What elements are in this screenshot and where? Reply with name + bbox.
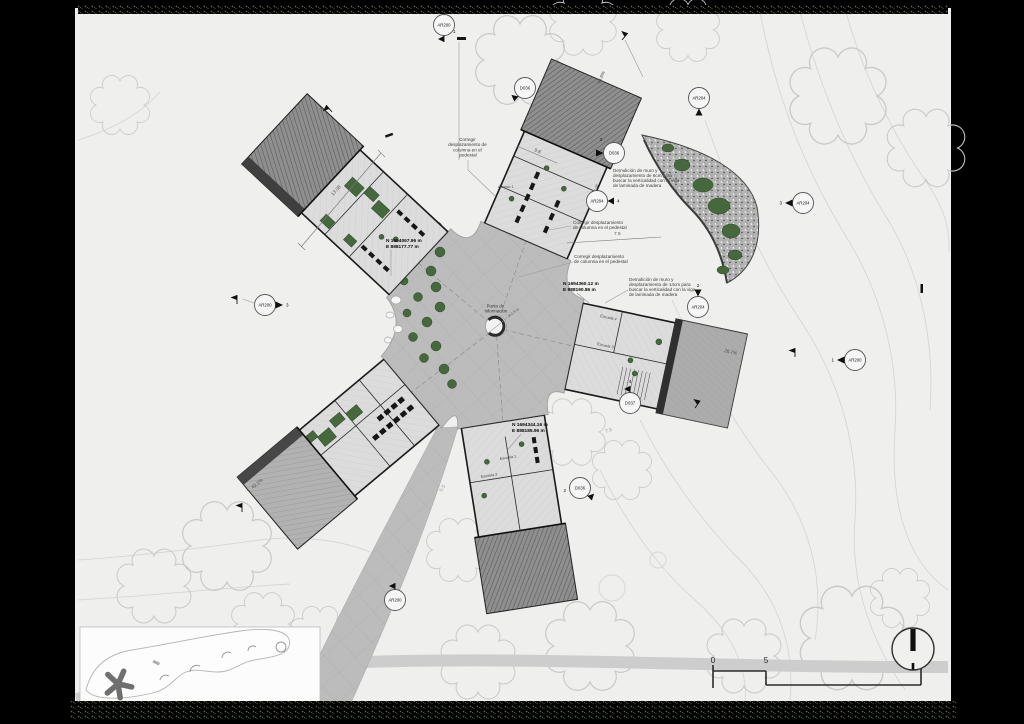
svg-text:AR204: AR204 [692,96,706,101]
svg-text:2: 2 [697,283,700,288]
svg-text:AR204: AR204 [691,305,705,310]
key-plan-inset [80,627,320,703]
svg-text:1: 1 [831,358,834,363]
svg-text:3: 3 [599,137,602,142]
north-arrow-icon [892,628,934,670]
svg-text:AR204: AR204 [590,199,604,204]
benchmark-1: 1 [453,29,456,34]
scale-0: 0 [711,656,716,665]
info-point-label: Punto de información [485,304,508,314]
svg-text:AR204: AR204 [796,201,810,206]
svg-text:AR200: AR200 [388,598,402,603]
svg-text:AR200: AR200 [848,358,862,363]
annotation-corregir-2: Corregir desplazamiento de columna en el… [573,220,627,230]
svg-text:4: 4 [617,199,620,204]
vegetation-band-top [78,5,948,14]
annotation-corregir-3: Corregir desplazamiento de columna en el… [574,254,628,264]
dim-crescent: 7.5 [614,231,621,237]
svg-text:AR200: AR200 [437,23,451,28]
vegetation-band-bottom [70,701,956,720]
roof-south [475,523,578,613]
svg-text:D036: D036 [609,151,620,156]
svg-text:3: 3 [779,201,782,206]
svg-text:2: 2 [563,488,566,493]
svg-text:3: 3 [286,303,289,308]
site-plan-screenshot: Punto de información ø 2.9 m Corregir de… [0,0,1024,724]
svg-text:D036: D036 [575,486,586,491]
scale-5: 5 [764,656,769,665]
svg-text:D037: D037 [625,401,636,406]
svg-text:AR200: AR200 [258,303,272,308]
svg-text:4: 4 [629,379,632,384]
svg-text:D036: D036 [520,86,531,91]
site-plan-drawing: Punto de información ø 2.9 m Corregir de… [0,0,1024,724]
room-label-acceso: Acceso 1 [498,185,514,189]
